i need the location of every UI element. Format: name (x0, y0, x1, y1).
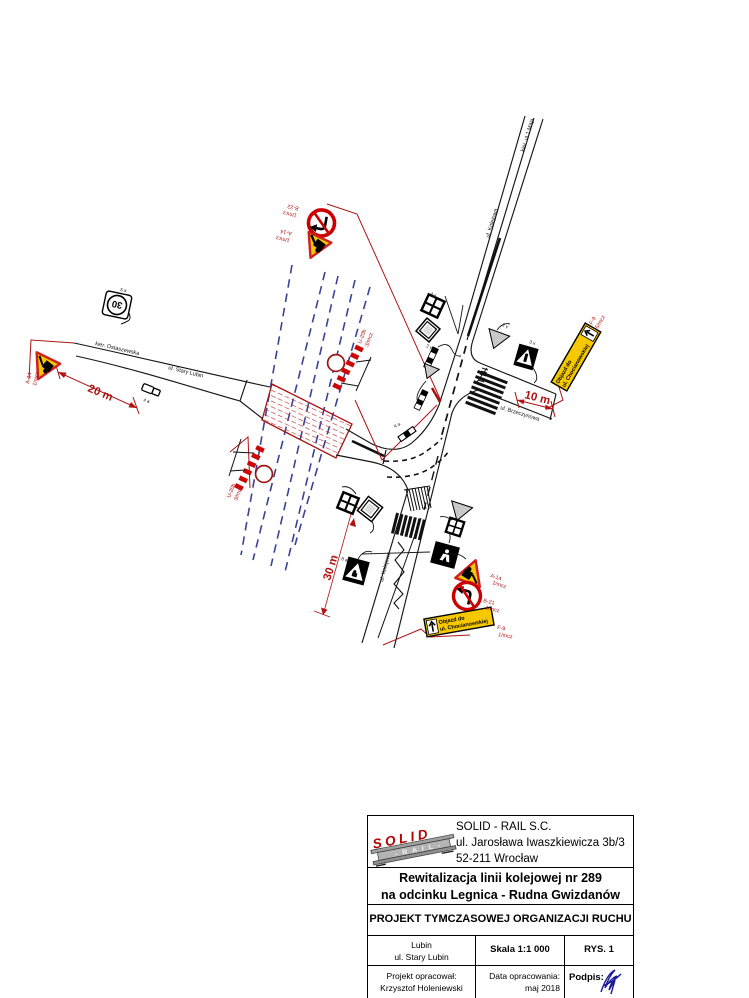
svg-text:5 a: 5 a (120, 287, 128, 293)
svg-text:2 y: 2 y (502, 322, 510, 329)
svg-text:20 m: 20 m (86, 383, 115, 404)
svg-text:30: 30 (111, 298, 124, 311)
svg-text:1/mcz: 1/mcz (498, 632, 514, 640)
svg-text:30 m: 30 m (321, 554, 340, 582)
svg-text:3 x: 3 x (529, 339, 537, 346)
svg-text:4 a: 4 a (143, 397, 151, 404)
svg-text:4 a: 4 a (393, 421, 401, 429)
svg-text:A-14: A-14 (280, 228, 292, 236)
svg-text:ul. Stary Lubin: ul. Stary Lubin (168, 365, 204, 379)
svg-text:10 m: 10 m (523, 389, 551, 407)
svg-text:ul. Kolejowa: ul. Kolejowa (485, 207, 500, 238)
svg-text:5/mcz: 5/mcz (595, 314, 608, 330)
svg-text:1/mcz: 1/mcz (491, 580, 507, 590)
svg-text:ul. Brzeczynowa: ul. Brzeczynowa (499, 405, 541, 423)
svg-text:ul. Kolejowa: ul. Kolejowa (379, 551, 392, 583)
svg-text:B-22: B-22 (287, 203, 299, 211)
